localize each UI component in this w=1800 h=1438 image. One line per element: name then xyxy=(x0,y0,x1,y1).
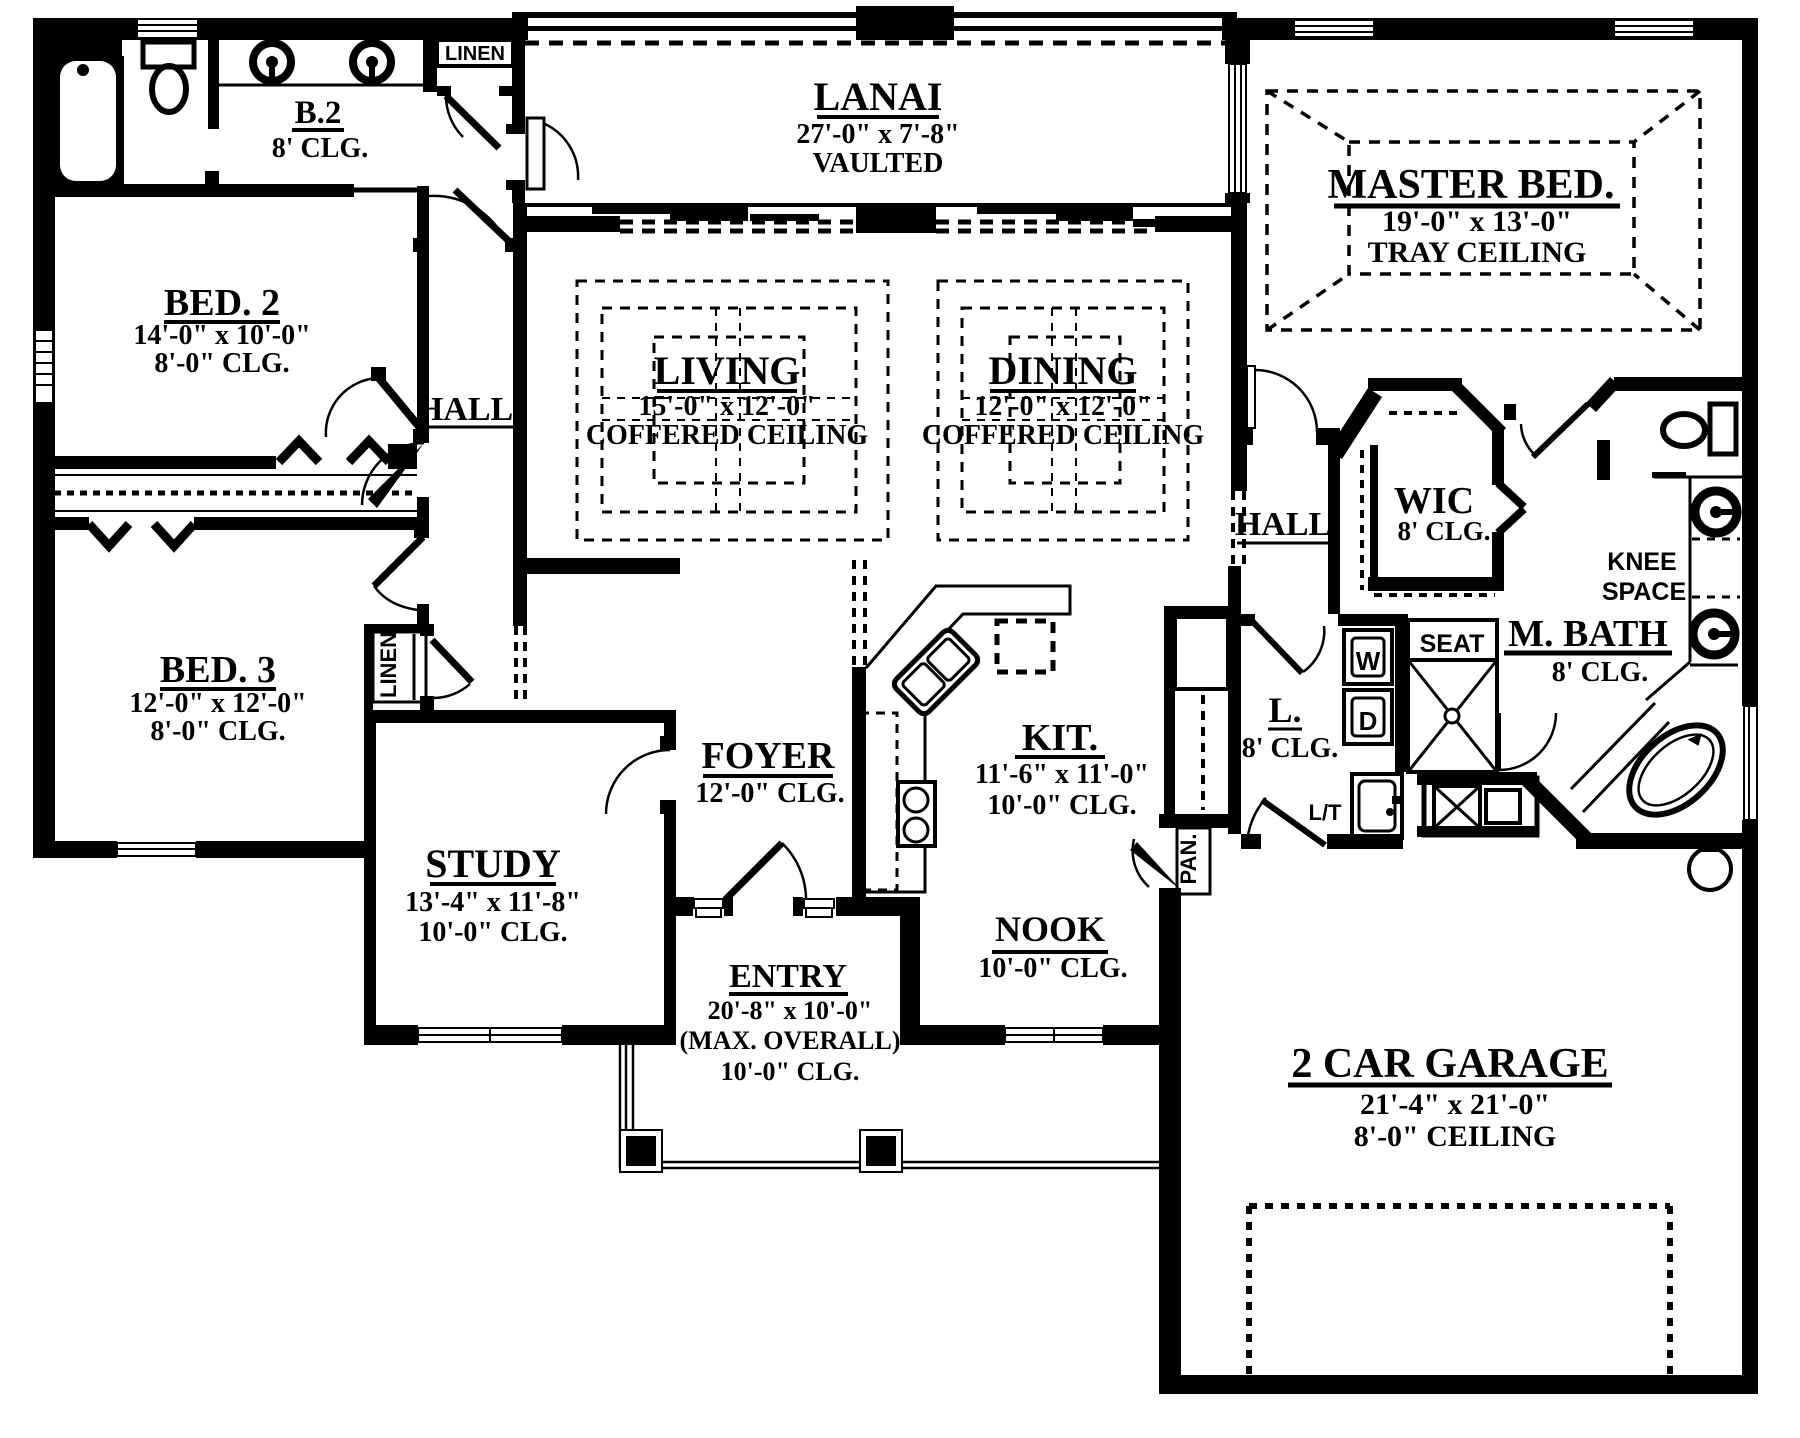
svg-text:LINEN: LINEN xyxy=(445,43,505,65)
svg-text:BED. 3: BED. 3 xyxy=(160,649,276,691)
svg-text:LINEN: LINEN xyxy=(376,632,401,698)
svg-text:W: W xyxy=(1356,646,1381,676)
svg-text:10'-0" CLG.: 10'-0" CLG. xyxy=(978,953,1127,984)
svg-text:B.2: B.2 xyxy=(295,95,342,131)
svg-text:PAN.: PAN. xyxy=(1176,834,1201,885)
svg-text:15'-0" x 12'-0": 15'-0" x 12'-0" xyxy=(638,391,815,422)
svg-text:27'-0" x 7'-8": 27'-0" x 7'-8" xyxy=(796,119,959,150)
svg-text:14'-0" x 10'-0": 14'-0" x 10'-0" xyxy=(133,320,310,351)
svg-text:SEAT: SEAT xyxy=(1420,630,1485,658)
svg-text:10'-0" CLG.: 10'-0" CLG. xyxy=(721,1057,860,1086)
svg-text:19'-0" x 13'-0": 19'-0" x 13'-0" xyxy=(1382,205,1572,238)
svg-text:LIVING: LIVING xyxy=(654,348,801,393)
svg-text:12'-0" x 12'-0": 12'-0" x 12'-0" xyxy=(129,688,306,719)
svg-text:8' CLG.: 8' CLG. xyxy=(272,133,368,164)
svg-text:10'-0" CLG.: 10'-0" CLG. xyxy=(418,917,567,948)
svg-text:DINING: DINING xyxy=(989,348,1138,393)
svg-text:COFFERED CEILING: COFFERED CEILING xyxy=(586,420,869,451)
svg-text:10'-0" CLG.: 10'-0" CLG. xyxy=(987,790,1136,821)
svg-text:MASTER BED.: MASTER BED. xyxy=(1327,162,1614,208)
svg-text:HALL: HALL xyxy=(417,391,513,428)
svg-text:HALL: HALL xyxy=(1235,506,1331,543)
svg-text:SPACE: SPACE xyxy=(1602,578,1686,606)
svg-text:ENTRY: ENTRY xyxy=(729,958,847,995)
svg-text:8' CLG.: 8' CLG. xyxy=(1242,733,1338,764)
svg-text:11'-6" x 11'-0": 11'-6" x 11'-0" xyxy=(975,759,1149,790)
svg-text:KIT.: KIT. xyxy=(1022,717,1098,759)
svg-text:(MAX. OVERALL): (MAX. OVERALL) xyxy=(680,1026,901,1055)
svg-text:20'-8" x 10'-0": 20'-8" x 10'-0" xyxy=(708,996,873,1025)
svg-text:COFFERED CEILING: COFFERED CEILING xyxy=(922,420,1205,451)
svg-text:8'-0" CLG.: 8'-0" CLG. xyxy=(154,348,289,379)
svg-text:VAULTED: VAULTED xyxy=(813,148,944,179)
svg-text:12'-0" x 12'-0": 12'-0" x 12'-0" xyxy=(974,391,1151,422)
svg-text:NOOK: NOOK xyxy=(995,909,1105,949)
svg-text:12'-0" CLG.: 12'-0" CLG. xyxy=(695,778,844,809)
svg-text:LANAI: LANAI xyxy=(814,74,943,119)
svg-text:L.: L. xyxy=(1268,690,1301,730)
svg-text:TRAY CEILING: TRAY CEILING xyxy=(1368,236,1587,269)
svg-text:M. BATH: M. BATH xyxy=(1508,613,1668,655)
svg-text:KNEE: KNEE xyxy=(1607,548,1676,576)
svg-text:BED. 2: BED. 2 xyxy=(164,282,280,324)
svg-text:13'-4" x 11'-8": 13'-4" x 11'-8" xyxy=(405,887,581,918)
svg-text:L/T: L/T xyxy=(1309,800,1343,825)
svg-text:STUDY: STUDY xyxy=(425,841,561,886)
svg-text:FOYER: FOYER xyxy=(702,735,836,777)
svg-text:D: D xyxy=(1359,706,1378,736)
svg-text:21'-4" x 21'-0": 21'-4" x 21'-0" xyxy=(1360,1088,1550,1121)
svg-text:8'-0" CEILING: 8'-0" CEILING xyxy=(1354,1120,1557,1153)
svg-text:8' CLG.: 8' CLG. xyxy=(1397,516,1490,546)
svg-text:2 CAR GARAGE: 2 CAR GARAGE xyxy=(1291,1041,1608,1087)
svg-text:8' CLG.: 8' CLG. xyxy=(1552,657,1648,688)
svg-text:8'-0" CLG.: 8'-0" CLG. xyxy=(150,716,285,747)
